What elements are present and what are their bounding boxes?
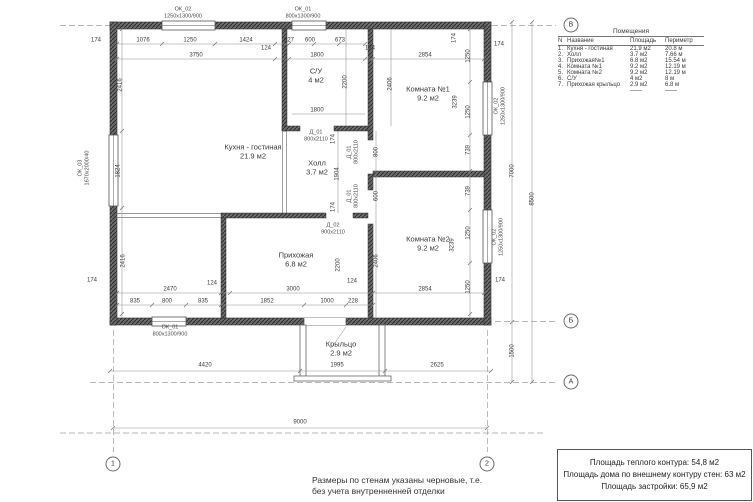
opening-tag-label: ОК_01800х1300/900 [153, 324, 188, 337]
dimension-label: 1424 [239, 38, 252, 45]
opening-tag-label: ОК_021250х1300/900 [493, 87, 506, 125]
legend-cell [567, 88, 630, 94]
note-line-1: Размеры по стенам указаны черновые, т.е. [312, 475, 482, 486]
legend-header-cell: Площадь [630, 38, 665, 46]
note-line-2: без учета внутренненней отделки [312, 486, 482, 497]
dimension-label: 228 [348, 299, 358, 306]
room-label: Холл3.7 м2 [306, 159, 328, 176]
dimension-label: 2200 [343, 75, 350, 88]
dimension-label: 4420 [198, 363, 211, 370]
room-label: С/У4 м2 [308, 67, 324, 84]
summary-line-1: Площадь теплого контура: 54,8 м2 [558, 457, 751, 469]
dimension-label: 1500 [510, 344, 517, 357]
dimension-label: 2406 [374, 254, 381, 267]
dimension-label: 673 [335, 38, 345, 45]
dimension-label: 9000 [293, 420, 306, 427]
summary-line-3: Площадь застройки: 65,9 м2 [558, 481, 751, 493]
dimension-label: 1076 [136, 38, 149, 45]
opening-tag-label: ОК_031670х2000/40 [77, 151, 90, 186]
dimension-label: 7000 [510, 164, 517, 177]
dimension-label: 1250 [466, 49, 473, 62]
dimension-label: 124 [207, 281, 217, 288]
axis-marker: 2 [480, 457, 495, 472]
dimension-label: 174 [452, 33, 459, 43]
legend-cell: —— [665, 88, 704, 94]
legend-table-body: 1.Кухня - гостиная21.9 м220.8 м2.Холл3.7… [558, 46, 704, 95]
legend-title: Помещения [558, 28, 704, 37]
dimension-label: 2854 [418, 287, 431, 294]
dimension-label: 3239 [453, 95, 460, 108]
dimension-label: 1250 [466, 226, 473, 239]
dimension-label: 3239 [450, 238, 457, 251]
opening-tag-label: ОК_021250х1300/900 [491, 218, 504, 256]
dimension-label: 600 [374, 191, 381, 201]
dimension-label: 800 [162, 299, 172, 306]
floor-plan-sheet: Кухня - гостиная21.9 м2С/У4 м2Комната №1… [0, 0, 753, 502]
dimension-label: 124 [261, 46, 271, 53]
dimension-label: 1250 [466, 105, 473, 118]
dimension-label: 1904 [335, 167, 342, 180]
dimension-label: 2625 [430, 363, 443, 370]
dimension-label: 2200 [336, 258, 343, 271]
dimension-label: 2854 [418, 53, 431, 60]
opening-tag-label: Д_01800х2110 [304, 129, 328, 142]
legend-panel: Помещения NНазваниеПлощадьПериметр 1.Кух… [558, 28, 704, 94]
opening-tag-label: Д_01800х2110 [346, 140, 359, 164]
dimension-label: 2416 [121, 254, 128, 267]
dimension-label: 800 [374, 147, 381, 157]
summary-line-2: Площадь дома по внешнему контуру стен: 6… [558, 469, 751, 481]
dimension-label: 327 [284, 38, 294, 45]
dimension-label: 835 [198, 299, 208, 306]
legend-cell: —— [630, 88, 665, 94]
legend-cell [558, 88, 567, 94]
room-label: Прихожая6.8 м2 [279, 251, 314, 268]
dimension-label: 2470 [163, 287, 176, 294]
opening-tag-label: ОК_01800х1300/900 [286, 6, 321, 19]
dimension-label: 3750 [189, 53, 202, 60]
dimension-label: 1824 [116, 164, 123, 177]
legend-table: NНазваниеПлощадьПериметр 1.Кухня - гости… [558, 38, 704, 94]
legend-header-cell: Название [567, 38, 630, 46]
room-label: Крыльцо2.9 м2 [326, 340, 357, 357]
dimension-label: 1000 [320, 299, 333, 306]
dimension-label: 1250 [466, 280, 473, 293]
dimension-label: 1250 [183, 38, 196, 45]
dimension-label: 174 [87, 278, 97, 285]
dimension-label: 1995 [330, 363, 343, 370]
legend-header-cell: Периметр [665, 38, 704, 46]
dimension-label: 835 [130, 299, 140, 306]
opening-tag-label: Д_01800х2110 [346, 184, 359, 208]
legend-row: ———— [558, 88, 704, 94]
opening-tag-label: ОК_021250х1300/900 [164, 6, 202, 19]
dimension-label: 1800 [310, 53, 323, 60]
dimension-label: 174 [331, 134, 338, 144]
legend-header-row: NНазваниеПлощадьПериметр [558, 38, 704, 46]
dimension-label: 1852 [260, 299, 273, 306]
axis-marker: 1 [106, 457, 121, 472]
room-label: Кухня - гостиная21.9 м2 [224, 143, 281, 160]
dimension-label: 600 [305, 38, 315, 45]
dimension-label: 174 [331, 202, 338, 212]
dimension-label: 124 [347, 279, 357, 286]
dimension-label: 8500 [530, 192, 537, 205]
dimension-label: 124 [365, 46, 375, 53]
dimension-label: 174 [91, 38, 101, 45]
room-label: Комната №19.2 м2 [406, 85, 450, 102]
dimension-label: 174 [495, 278, 505, 285]
axis-marker: Б [564, 314, 579, 329]
room-label: Комната №29.2 м2 [406, 235, 450, 252]
legend-header-cell: N [558, 38, 567, 46]
dimension-label: 174 [494, 42, 504, 49]
dimension-label: 2406 [388, 77, 395, 90]
area-summary-box: Площадь теплого контура: 54,8 м2 Площадь… [557, 449, 752, 501]
sheet-note: Размеры по стенам указаны черновые, т.е.… [312, 475, 482, 496]
dimension-label: 739 [466, 186, 473, 196]
dimension-label: 739 [466, 145, 473, 155]
dimension-label: 1800 [310, 108, 323, 115]
opening-tag-label: Д_02900х2110 [321, 222, 345, 235]
dimension-label: 3000 [286, 287, 299, 294]
dimension-label: 2416 [118, 78, 125, 91]
axis-marker: А [564, 375, 579, 390]
